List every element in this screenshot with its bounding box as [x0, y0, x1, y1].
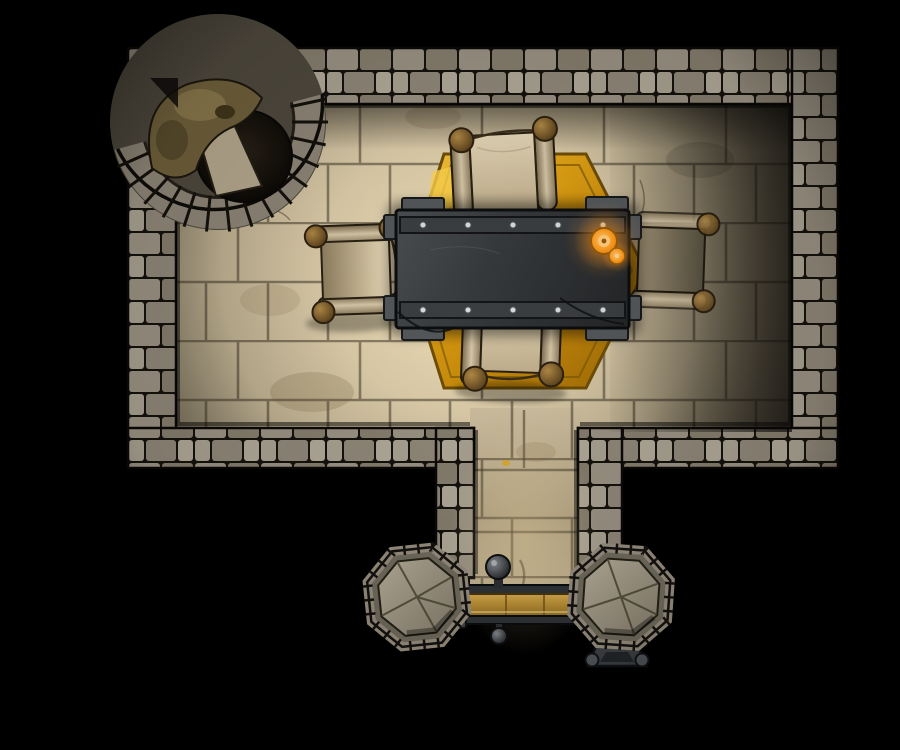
vignette [0, 0, 900, 750]
dungeon-map: Top-down dungeon battle map: stone counc… [0, 0, 900, 750]
dungeon-map-canvas: Top-down dungeon battle map: stone counc… [0, 0, 900, 750]
candle-glow [564, 201, 644, 281]
